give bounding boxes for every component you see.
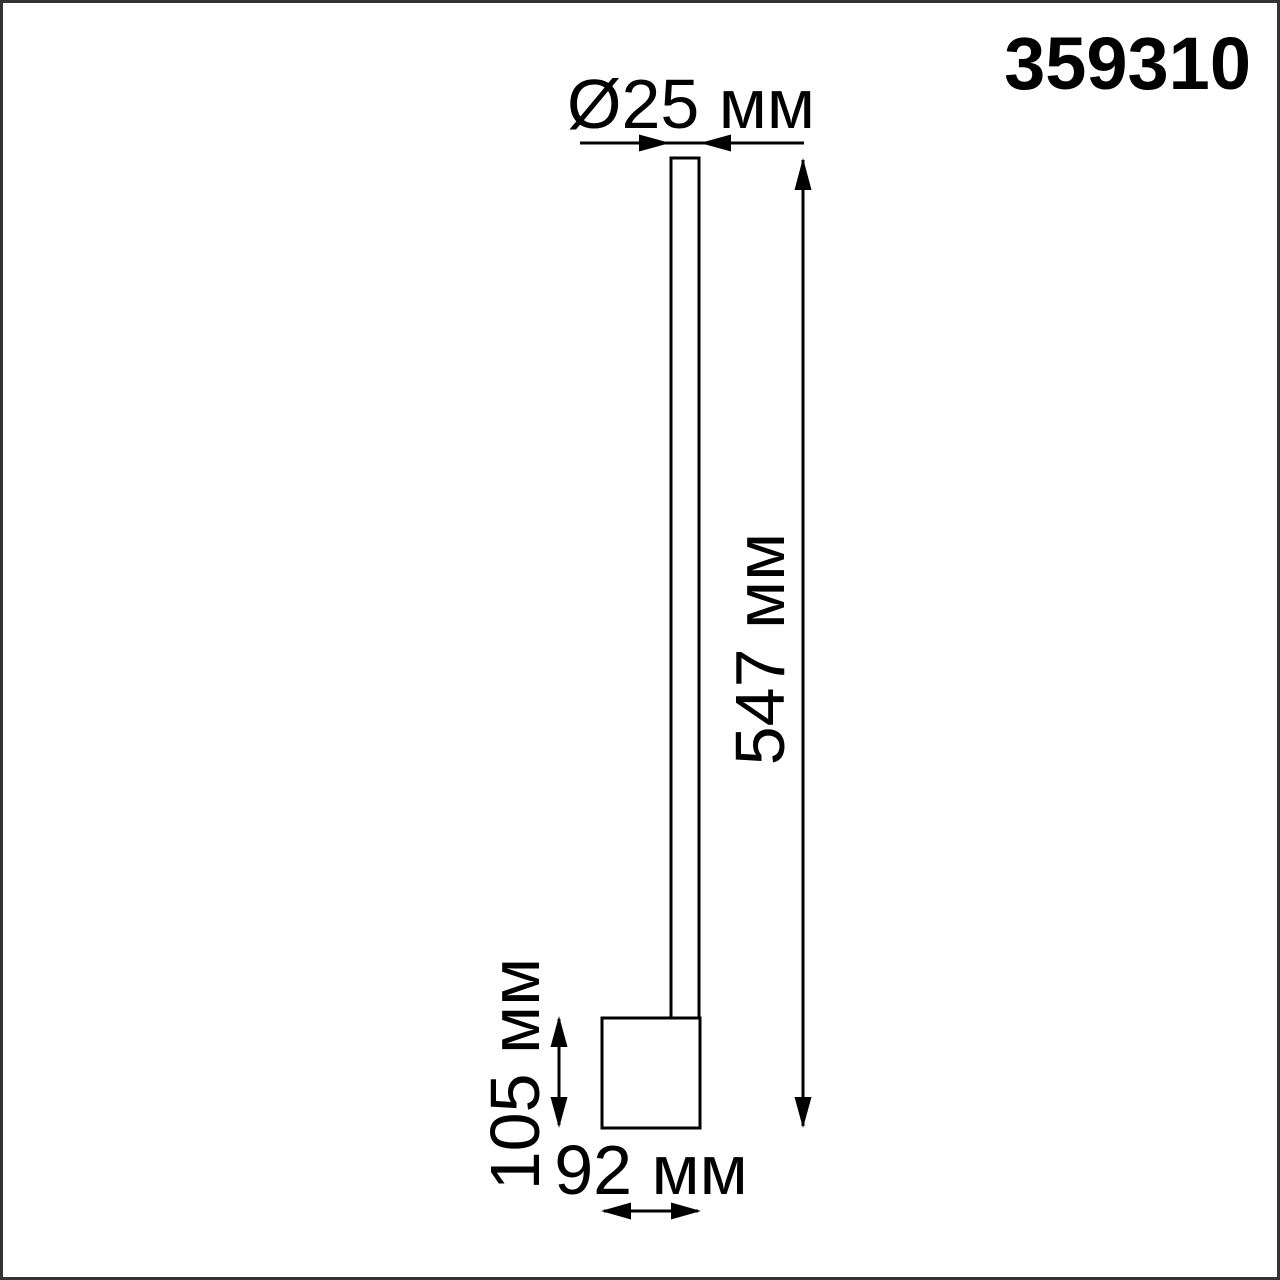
lamp-tube-outline	[671, 158, 699, 1018]
product-code: 359310	[1004, 27, 1251, 101]
lamp-base-outline	[602, 1018, 700, 1128]
height-arrow-up-icon	[795, 158, 812, 190]
height-dimension-label: 547 мм	[725, 533, 795, 766]
technical-drawing-canvas: 359310 Ø25 мм 547 мм 105 мм 92 мм	[0, 0, 1280, 1280]
base-width-dimension-label: 92 мм	[554, 1135, 748, 1205]
lamp-outline-drawing	[3, 3, 1280, 1280]
height-arrow-down-icon	[795, 1097, 812, 1128]
diameter-dimension-label: Ø25 мм	[567, 69, 815, 139]
base-height-dimension-label: 105 мм	[480, 958, 550, 1191]
